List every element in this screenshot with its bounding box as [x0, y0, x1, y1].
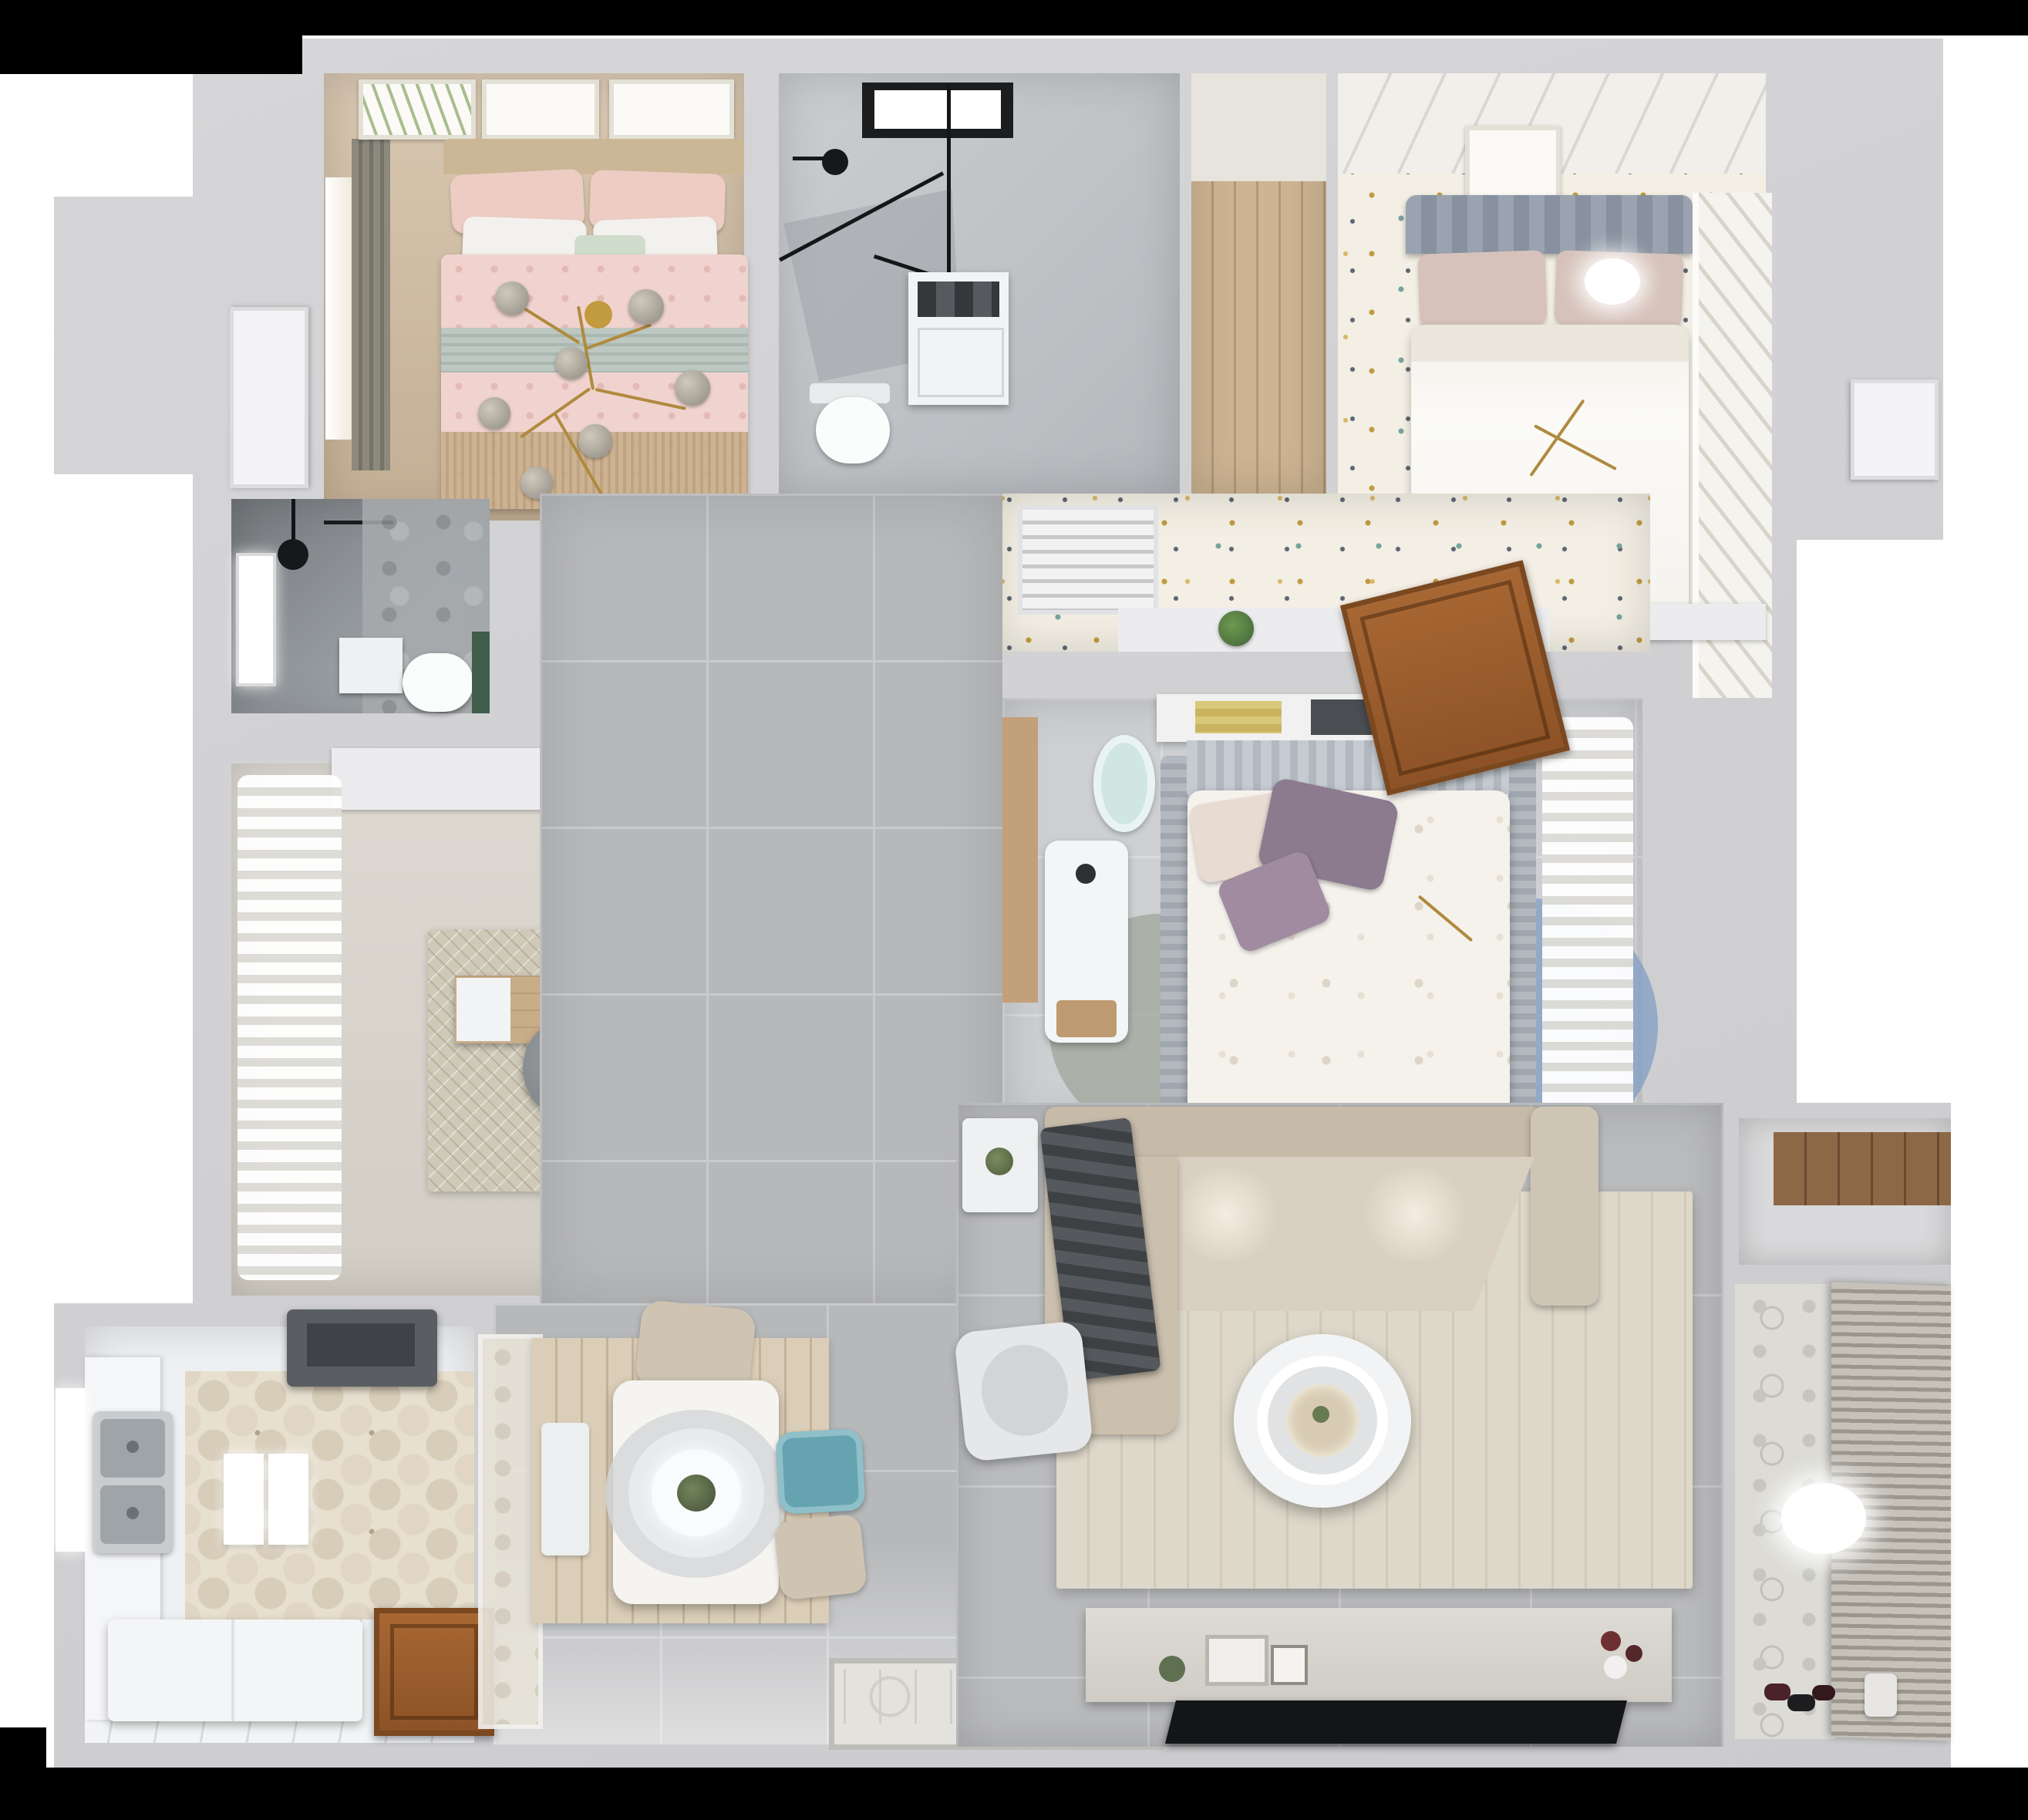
picture-frame-bed	[1465, 126, 1561, 206]
kitchen-window	[56, 1388, 85, 1552]
desk-wood-drawer	[1056, 1000, 1117, 1037]
console-vase-red-a	[1601, 1631, 1621, 1651]
room-living	[956, 1103, 1723, 1747]
bed-rail-right	[1508, 756, 1536, 1157]
picture-frame-script	[482, 79, 599, 140]
bed-rail-left	[1161, 756, 1188, 1157]
upright-panel-a	[224, 1454, 264, 1545]
tv-console	[1086, 1608, 1672, 1702]
pillow-beige-left	[1417, 250, 1547, 329]
toilet-bowl	[816, 397, 890, 463]
shoes-dark-c	[1812, 1685, 1835, 1700]
shower2-head	[278, 539, 308, 570]
plant-accent-green	[472, 632, 490, 713]
desk-accessories	[1076, 864, 1096, 884]
blanket-sage-band	[441, 328, 748, 372]
service-door-right	[1851, 379, 1939, 480]
dining-chair-bottom	[773, 1513, 867, 1600]
side-table-plant	[962, 1118, 1038, 1212]
hallway-vertical	[540, 494, 1002, 1303]
ledge-plant	[1218, 611, 1254, 646]
shower-arm	[793, 157, 827, 160]
washer-panel	[918, 281, 999, 317]
ceiling-light-glow	[1585, 258, 1640, 305]
duvet-fold	[1411, 325, 1689, 362]
wood-ledge-left	[1002, 717, 1038, 1003]
sofa-seat-light-a	[1168, 1168, 1284, 1261]
tv-black	[1165, 1700, 1627, 1744]
balcony-room	[1735, 1284, 1951, 1739]
island-counter	[108, 1619, 362, 1721]
outside-left-mid	[54, 474, 193, 1303]
toilet2	[403, 653, 473, 712]
room-shower-dark	[231, 499, 490, 713]
dining-bench-left	[541, 1423, 589, 1555]
letterbox-bottom	[0, 1768, 2028, 1820]
shoes-dark-a	[1764, 1684, 1791, 1700]
shoes-dark-b	[1787, 1694, 1815, 1711]
storage-niche	[1739, 1118, 1951, 1265]
letterbox-bottom-left	[0, 1727, 46, 1820]
picture-frame-leaf	[359, 79, 476, 140]
console-frame-small	[1271, 1645, 1308, 1685]
shower-head	[822, 149, 848, 175]
room-bathroom-top	[779, 73, 1180, 494]
sofa-arm-right	[1531, 1107, 1598, 1306]
armchair	[954, 1320, 1094, 1462]
outside-right-mid	[1797, 540, 2028, 1103]
outside-left-upper	[54, 73, 193, 197]
picture-frame-botanic	[609, 79, 734, 140]
left-wall-door	[230, 307, 308, 488]
sofa-seat-light-b	[1357, 1168, 1473, 1261]
bed-headboard	[443, 139, 744, 174]
room-closet-hall	[1191, 73, 1326, 494]
bathroom-window-glow	[874, 90, 1001, 129]
coffee-table-center	[1286, 1384, 1359, 1457]
window-glow	[325, 177, 353, 440]
washer-door-line	[918, 328, 1004, 397]
sheer-curtain-wall	[1542, 717, 1633, 1161]
room-kitchen	[85, 1326, 474, 1743]
ac-vent	[1018, 505, 1158, 615]
dining-chair-teal	[775, 1428, 865, 1515]
wall-white-box	[339, 638, 403, 693]
room-bedroom-middle	[1002, 698, 1642, 1126]
double-sink	[93, 1411, 173, 1553]
bed-headboard-gray	[1406, 195, 1693, 254]
curtain-dark	[352, 139, 390, 470]
balcony-bucket	[1865, 1673, 1897, 1717]
shower2-window	[236, 553, 276, 686]
outside-right-top	[1943, 39, 2028, 586]
console-plant-disc	[1159, 1656, 1185, 1682]
shower-glass-edge-2	[947, 86, 951, 278]
stool-teal-left	[1093, 735, 1155, 832]
storage-wood-shelf	[1774, 1132, 1951, 1205]
study-side-panel	[456, 978, 510, 1041]
letterbox-top-left	[0, 0, 302, 74]
upright-panel-b	[268, 1454, 308, 1545]
room-bedroom-pink	[324, 73, 744, 521]
console-frames	[1205, 1635, 1268, 1686]
room-corridor-dressing	[995, 494, 1650, 652]
balcony-light-glow	[1781, 1483, 1866, 1554]
letterbox-top	[0, 0, 2028, 35]
shelf-books-yellow	[1195, 701, 1282, 733]
chandelier-hub	[584, 301, 612, 329]
kitchen-entry-door	[374, 1608, 494, 1736]
floor-plan-canvas	[0, 0, 2028, 1820]
closet-ceiling-strip	[1191, 73, 1326, 181]
outside-right-bottom	[1962, 1103, 2028, 1770]
study-curtains	[237, 775, 342, 1280]
range-hood	[287, 1309, 437, 1387]
console-vase-white	[1604, 1656, 1627, 1679]
pendant-plant-center	[677, 1475, 716, 1512]
console-vase-red-b	[1625, 1645, 1642, 1662]
